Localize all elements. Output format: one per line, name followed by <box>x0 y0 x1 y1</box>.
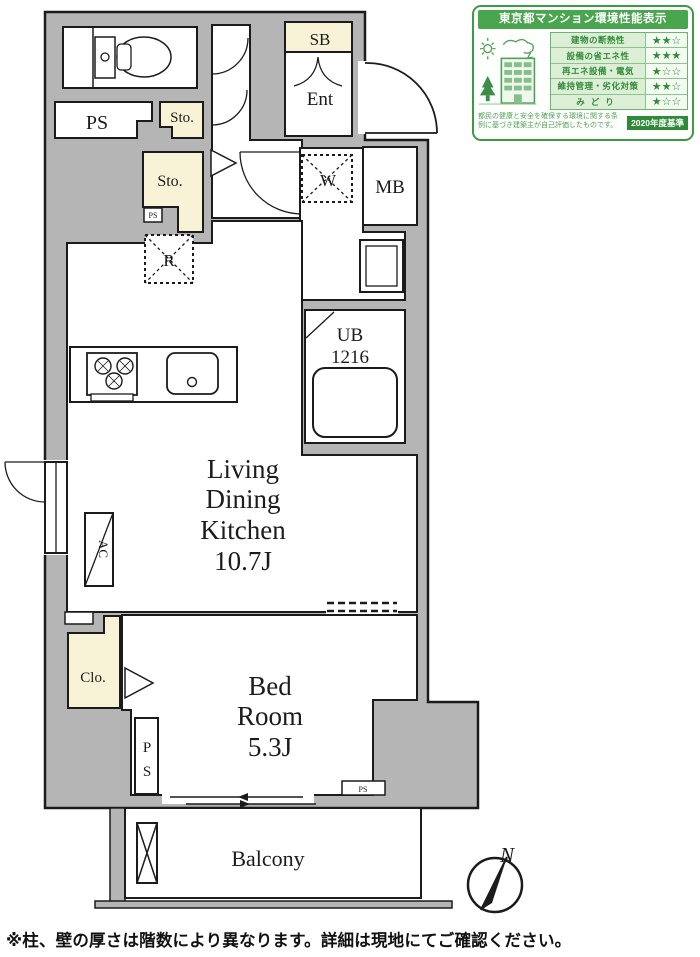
pipe-space-small-upper-label: PS <box>149 211 158 220</box>
entrance-label: Ent <box>307 89 334 110</box>
rating-label: 建物の断熱性 <box>551 33 646 47</box>
rating-table: 建物の断熱性 ★★☆ 設備の省エネ性 ★★★ 再エネ設備・電気 ★☆☆ 維持管理… <box>550 32 688 110</box>
storage-lower-label: Sto. <box>157 173 182 190</box>
ac-label: AC <box>96 540 111 558</box>
certificate-footnote: 都民の健康と安全を確保する環境に関する条例に基づき建築主が自己評価したものです。 <box>478 112 624 130</box>
building-icon <box>501 58 534 103</box>
balcony-partition-icon <box>137 823 157 883</box>
vanity-icon <box>360 240 403 292</box>
compass-n-label: N <box>499 843 515 867</box>
pipe-space-vertical-s: S <box>143 764 151 780</box>
rating-stars: ★★★ <box>646 48 687 62</box>
refrigerator-label: R <box>163 251 175 270</box>
pipe-space-shaft <box>135 718 158 794</box>
pipe-space-top-label: PS <box>86 112 108 134</box>
bathtub-icon <box>313 368 397 437</box>
ldk-label-1: Living <box>207 454 279 484</box>
meter-box-label: MB <box>375 177 405 198</box>
bedroom-label-2: Room <box>237 701 303 731</box>
cloud-icon <box>503 40 533 54</box>
rating-row: 設備の省エネ性 ★★★ <box>551 48 687 63</box>
ldk-label-3: Kitchen <box>200 515 286 545</box>
tree-icon <box>480 76 496 101</box>
unit-bath-label-2: 1216 <box>331 347 369 368</box>
ldk-label-4: 10.7J <box>214 546 272 576</box>
rating-stars: ★☆☆ <box>646 95 687 109</box>
ldk-bedroom-opening <box>326 600 398 614</box>
pipe-space-vertical-p: P <box>143 740 151 756</box>
rating-stars: ★★☆ <box>646 33 687 47</box>
entrance-door-arc <box>365 63 437 133</box>
building-illustration <box>478 32 550 110</box>
rating-row: 建物の断熱性 ★★☆ <box>551 33 687 48</box>
rating-row: 再エネ設備・電気 ★☆☆ <box>551 64 687 79</box>
rating-stars: ★☆☆ <box>646 64 687 78</box>
bedroom-label-3: 5.3J <box>248 732 292 762</box>
entrance-doorway <box>358 61 369 134</box>
balcony-label: Balcony <box>231 846 304 871</box>
floorplan-drawing: N Living Dining Kitchen 10.7J Bed Room 5… <box>0 0 700 957</box>
ldk-label-2: Dining <box>205 484 280 514</box>
sun-icon <box>480 38 496 59</box>
room-toilet <box>63 27 197 88</box>
rating-stars: ★★☆ <box>646 79 687 93</box>
sink-icon <box>167 353 218 394</box>
rating-row: 維持管理・劣化対策 ★★☆ <box>551 79 687 94</box>
pipe-space-small-lower-label: PS <box>359 785 368 794</box>
environment-performance-card: 東京都マンション環境性能表示 <box>472 5 694 141</box>
bedroom-label-1: Bed <box>248 671 292 701</box>
rating-label: 設備の省エネ性 <box>551 48 646 62</box>
certificate-title: 東京都マンション環境性能表示 <box>478 10 688 29</box>
compass: N <box>468 843 522 912</box>
floorplan-page: N Living Dining Kitchen 10.7J Bed Room 5… <box>0 0 700 957</box>
toilet-icon <box>95 37 171 78</box>
window-left <box>5 460 69 555</box>
rating-row: みどり ★☆☆ <box>551 95 687 109</box>
certificate-year-badge: 2020年度基準 <box>627 116 688 130</box>
unit-bath-label-1: UB <box>337 325 363 346</box>
closet-label: Clo. <box>80 670 105 686</box>
storage-upper-label: Sto. <box>170 110 194 126</box>
rating-label: みどり <box>551 95 646 109</box>
shoe-box-label: SB <box>310 30 331 49</box>
page-footnote: ※柱、壁の厚さは階数により異なります。詳細は現地にてご確認ください。 <box>6 927 606 951</box>
washer-label: W <box>320 171 337 190</box>
rating-label: 維持管理・劣化対策 <box>551 79 646 93</box>
rating-label: 再エネ設備・電気 <box>551 64 646 78</box>
kitchen-counter-icon <box>70 347 237 402</box>
